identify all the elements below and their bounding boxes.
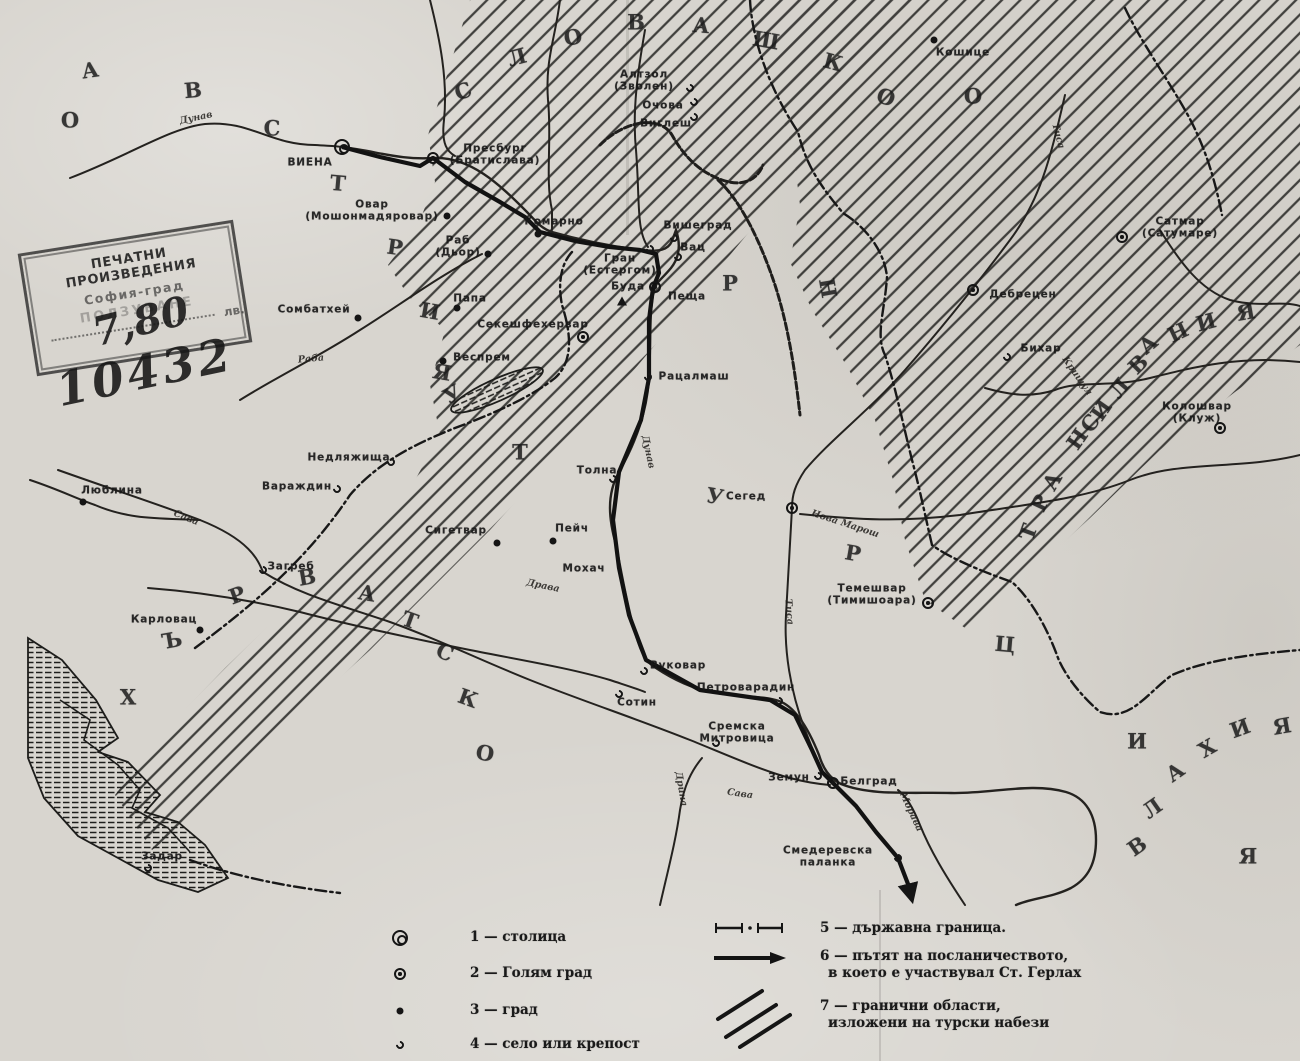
city-label: паланка [800, 857, 856, 869]
city-symbol-big [1116, 231, 1128, 243]
city-label: Мохач [563, 563, 606, 575]
city-symbol-town [454, 305, 461, 312]
city-label: Пейч [555, 523, 589, 535]
region-letter-турция: Ц [994, 631, 1016, 658]
city-label: Белград [840, 776, 897, 788]
legend-sample-hatch [712, 985, 804, 1053]
map-page: ВИЕНАПресбург(Братислава)Овар(Мошонмадяр… [0, 0, 1300, 1061]
city-symbol-big [827, 777, 839, 789]
city-symbol-big [786, 502, 798, 514]
city-label: Бихар [1021, 343, 1062, 355]
city-label: Земун [768, 772, 809, 784]
city-label: (Зволен) [614, 81, 674, 93]
city-symbol-big [649, 281, 661, 293]
legend-symbol-capital [392, 930, 408, 946]
city-symbol-town [494, 540, 501, 547]
city-symbol-big [967, 284, 979, 296]
city-symbol-town [355, 315, 362, 322]
city-label: Вац [680, 242, 705, 254]
city-label: Карловац [131, 614, 197, 626]
map-artwork [0, 0, 1300, 1061]
city-label: ВИЕНА [287, 157, 332, 169]
region-letter-словашко: В [627, 10, 645, 35]
legend-item-label: 4 — село или крепост [470, 1036, 640, 1053]
city-label: (Мошонмадяровар) [305, 211, 438, 223]
legend-item-label: в което е участвувал Ст. Герлах [828, 965, 1081, 982]
city-label: Дебрецен [989, 289, 1056, 301]
region-letter-унгария: Р [722, 271, 738, 296]
city-symbol-big [922, 597, 934, 609]
region-letter-хърватско: Х [120, 685, 136, 710]
city-label: Веспрем [453, 352, 511, 364]
city-label: Вараждин [262, 481, 332, 493]
city-label: Пеща [668, 291, 706, 303]
region-letter-турция: И [1127, 729, 1147, 754]
city-label: Вуковар [650, 660, 706, 672]
city-label: Буда [611, 281, 645, 293]
city-label: (Сатумаре) [1142, 228, 1218, 240]
region-letter-турция: Я [1239, 844, 1258, 869]
region-letter-австрия: Р [385, 234, 404, 261]
region-letter-словашко: О [964, 84, 982, 109]
region-letter-австрия: В [183, 77, 203, 103]
city-symbol-town [550, 538, 557, 545]
city-label: Рацалмаш [659, 371, 730, 383]
region-letter-австрия: И [418, 297, 442, 325]
city-label: (Тимишоара) [827, 595, 916, 607]
legend-item-label: 1 — столица [470, 929, 566, 946]
fort-marker [617, 297, 627, 306]
city-label: Папа [453, 293, 487, 305]
city-label: (Дьор) [435, 247, 480, 259]
fold-crease-top [626, 0, 629, 235]
city-symbol-capital [334, 139, 350, 155]
region-letter-турция: Т [512, 440, 528, 465]
region-letter-хърватско: Ъ [160, 626, 184, 654]
city-label: Задар [141, 851, 183, 863]
region-letter-австрия: Т [329, 170, 347, 196]
legend-item-label: 7 — гранични области, [820, 998, 1001, 1015]
legend-item-label: 3 — град [470, 1002, 538, 1019]
region-letter-хърватско: В [296, 563, 318, 591]
city-label: Сигетвар [425, 525, 487, 537]
city-label: Митровица [699, 733, 774, 745]
region-letter-унгария: Н [814, 276, 842, 300]
legend-item-label: изложени на турски набези [828, 1015, 1049, 1032]
legend-sample-border [712, 920, 788, 940]
region-letter-трансилвания: Я [1235, 298, 1258, 326]
region-letter-австрия: А [80, 56, 100, 83]
city-label: Недляжища [308, 452, 391, 464]
city-label: Сомбатхей [278, 304, 351, 316]
legend-symbol-big [394, 968, 406, 980]
city-symbol-town [485, 251, 492, 258]
legend-item-label: 2 — Голям град [470, 965, 592, 982]
city-label: Кошице [936, 47, 990, 59]
legend-sample-route [712, 950, 788, 969]
city-symbol-town [197, 627, 204, 634]
region-letter-мизия: О [61, 108, 79, 133]
city-label: Люблина [81, 485, 143, 497]
city-label: (Братислава) [450, 155, 540, 167]
city-label: (Естергом) [583, 265, 656, 277]
city-symbol-town [931, 37, 938, 44]
city-symbol-town [80, 499, 87, 506]
legend-item-label: 6 — пътят на посланичеството, [820, 948, 1068, 965]
city-symbol-big [427, 152, 439, 164]
stamp-currency: лв. [223, 302, 246, 319]
region-letter-словашко: Ш [751, 25, 782, 54]
region-letter-влахия: Я [1271, 712, 1294, 740]
region-letter-словашко: А [691, 12, 710, 38]
city-label: Виглеш [640, 118, 692, 130]
region-letter-австрия: С [264, 116, 281, 141]
city-label: Очова [642, 100, 683, 112]
city-label: Секешфехервар [477, 319, 588, 331]
legend-symbol-town [397, 1008, 404, 1015]
city-symbol-town [444, 213, 451, 220]
city-label: Сегед [726, 491, 766, 503]
legend-item-label: 5 — държавна граница. [820, 920, 1006, 937]
city-label: Вишеград [664, 220, 733, 232]
city-symbol-town [535, 231, 542, 238]
river-label: Раба [297, 352, 324, 365]
city-label: Комарно [524, 216, 583, 228]
river-label: Тиса [782, 599, 795, 626]
city-label: (Клуж) [1173, 413, 1221, 425]
city-label: Толна [577, 465, 618, 477]
city-label: Петроварадин [697, 682, 795, 694]
city-symbol-big [577, 331, 589, 343]
city-label: Сотин [617, 697, 657, 709]
